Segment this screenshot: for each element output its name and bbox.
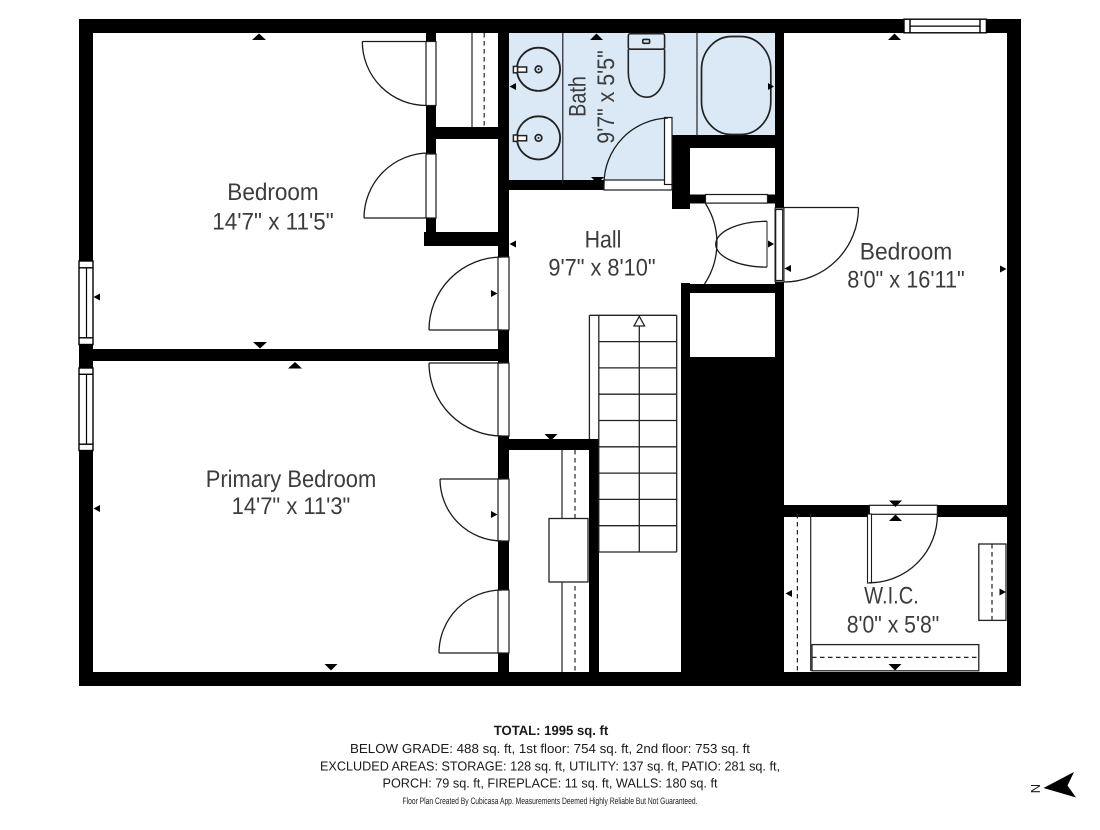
- svg-text:Bedroom: Bedroom: [860, 239, 953, 266]
- svg-text:BELOW GRADE: 488 sq. ft, 1st f: BELOW GRADE: 488 sq. ft, 1st floor: 754 …: [350, 741, 750, 756]
- svg-text:PORCH: 79 sq. ft, FIREPLACE: 1: PORCH: 79 sq. ft, FIREPLACE: 11 sq. ft, …: [383, 776, 718, 791]
- svg-text:W.I.C.: W.I.C.: [864, 583, 919, 610]
- svg-text:8'0" x 16'11": 8'0" x 16'11": [847, 267, 965, 294]
- svg-text:EXCLUDED AREAS: STORAGE: 128 s: EXCLUDED AREAS: STORAGE: 128 sq. ft, UTI…: [320, 759, 780, 774]
- svg-text:Bath: Bath: [565, 76, 592, 117]
- svg-text:14'7" x 11'5": 14'7" x 11'5": [212, 209, 333, 236]
- svg-text:Primary Bedroom: Primary Bedroom: [206, 466, 377, 493]
- svg-text:Hall: Hall: [585, 227, 622, 254]
- svg-text:Bedroom: Bedroom: [227, 179, 318, 206]
- svg-text:N: N: [1028, 784, 1043, 793]
- svg-text:8'0" x 5'8": 8'0" x 5'8": [847, 612, 940, 639]
- svg-text:9'7" x 5'5": 9'7" x 5'5": [593, 50, 620, 143]
- svg-text:TOTAL: 1995 sq. ft: TOTAL: 1995 sq. ft: [494, 723, 609, 738]
- svg-text:9'7" x 8'10": 9'7" x 8'10": [548, 255, 655, 282]
- svg-text:Floor Plan Created By Cubicasa: Floor Plan Created By Cubicasa App. Meas…: [403, 796, 698, 806]
- svg-text:14'7" x 11'3": 14'7" x 11'3": [232, 493, 351, 520]
